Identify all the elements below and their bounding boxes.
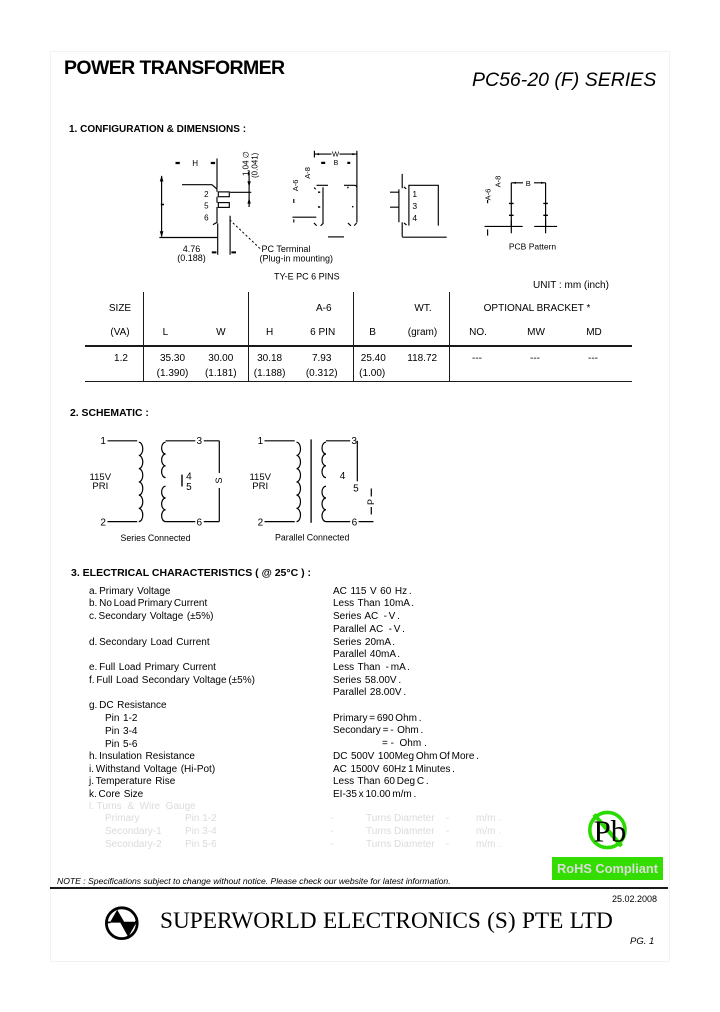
- svg-text:2: 2: [204, 190, 209, 199]
- svg-text:2: 2: [100, 517, 106, 528]
- svg-text:B: B: [526, 179, 531, 188]
- svg-text:A-6: A-6: [291, 180, 300, 192]
- svg-text:H: H: [192, 159, 198, 168]
- svg-text:6: 6: [204, 213, 209, 222]
- svg-text:S: S: [214, 477, 224, 483]
- svg-text:1: 1: [100, 436, 106, 447]
- svg-text:5: 5: [353, 484, 359, 495]
- svg-text:3: 3: [351, 436, 357, 447]
- svg-text:4: 4: [340, 471, 346, 482]
- svg-text:5: 5: [186, 482, 192, 493]
- svg-text:1: 1: [258, 436, 264, 447]
- svg-text:A-6: A-6: [484, 189, 493, 201]
- svg-text:B: B: [334, 160, 339, 167]
- svg-text:1.04 ∅: 1.04 ∅: [242, 151, 251, 176]
- svg-text:3: 3: [412, 201, 417, 211]
- svg-text:3: 3: [197, 436, 203, 447]
- svg-text:W: W: [332, 149, 340, 158]
- svg-text:PC Terminal: PC Terminal: [262, 244, 311, 254]
- svg-text:P: P: [366, 499, 376, 505]
- svg-text:Pb: Pb: [594, 814, 627, 849]
- svg-text:A-8: A-8: [303, 167, 312, 179]
- svg-text:(0.041): (0.041): [251, 152, 260, 178]
- svg-text:A-8: A-8: [494, 176, 503, 188]
- svg-text:(0.188): (0.188): [177, 253, 206, 263]
- svg-text:Parallel Connected: Parallel Connected: [275, 533, 349, 543]
- svg-text:6: 6: [197, 517, 203, 528]
- svg-text:1: 1: [412, 189, 417, 199]
- svg-text:2: 2: [258, 517, 264, 528]
- svg-text:4: 4: [186, 472, 192, 483]
- svg-text:6: 6: [352, 517, 358, 528]
- svg-text:PCB Pattern: PCB Pattern: [509, 241, 557, 251]
- svg-text:5: 5: [204, 202, 209, 211]
- svg-text:(Plug-in mounting): (Plug-in mounting): [260, 254, 334, 264]
- svg-text:4: 4: [412, 213, 417, 223]
- svg-text:TY-E PC 6 PINS: TY-E PC 6 PINS: [274, 272, 340, 282]
- svg-text:PRI: PRI: [92, 481, 108, 492]
- svg-text:PRI: PRI: [252, 481, 268, 492]
- svg-text:Series Connected: Series Connected: [121, 533, 191, 543]
